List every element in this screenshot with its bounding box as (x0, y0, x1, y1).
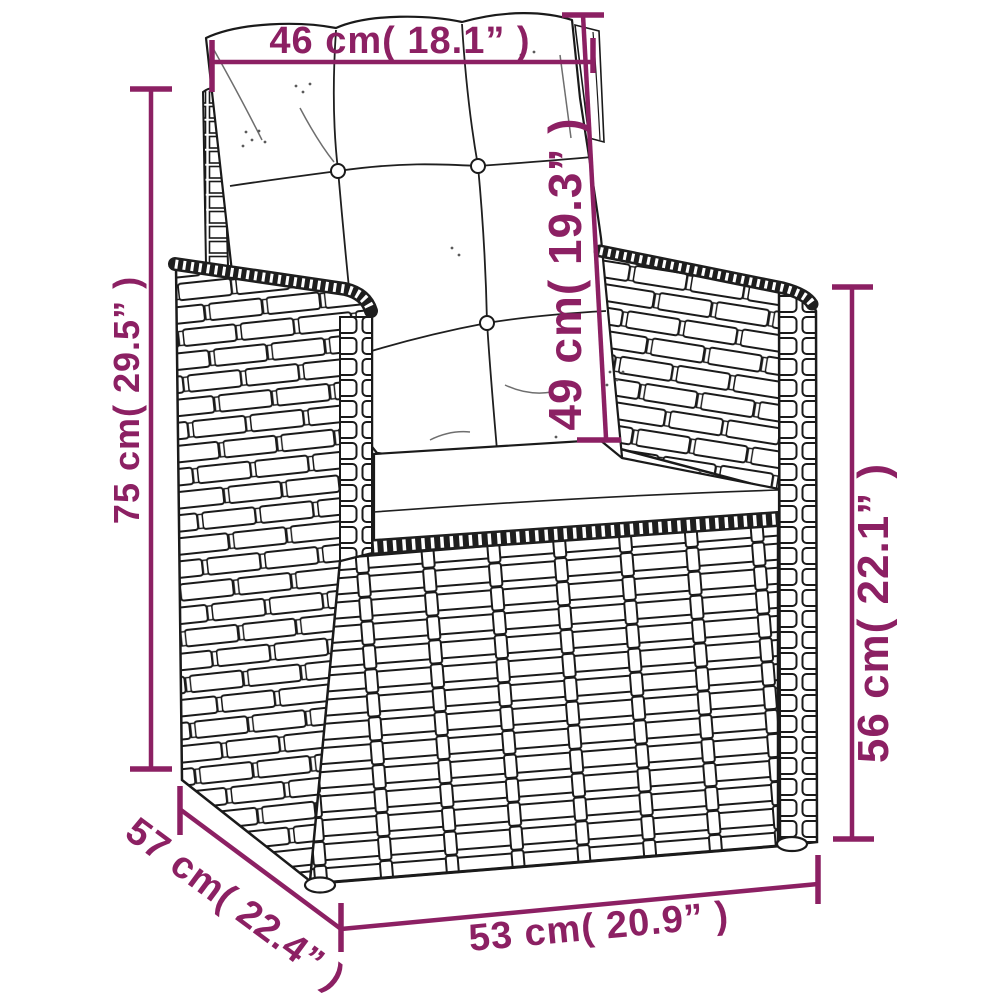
chair-foot-front-left (305, 878, 335, 893)
right-armrest-outer-side (779, 291, 817, 846)
dimension-total-height: 75 cm( 29.5” ) (106, 89, 172, 770)
dimension-label-arm-height: 56 cm( 22.1” ) (849, 463, 898, 763)
armchair-dimension-drawing: 46 cm( 18.1” ) 49 cm( 19.3” ) 75 cm( 29.… (0, 0, 1000, 1000)
dimension-label-back-height: 49 cm( 19.3” ) (539, 117, 591, 430)
base-front-panel (308, 522, 778, 884)
dimension-armrest-height: 56 cm( 22.1” ) (832, 287, 898, 840)
chair-foot-front-right (777, 837, 807, 851)
dimension-diagram: 46 cm( 18.1” ) 49 cm( 19.3” ) 75 cm( 29.… (0, 0, 1000, 1000)
tuft-button (331, 164, 345, 178)
chair-base (308, 519, 778, 884)
dimension-label-total-height: 75 cm( 29.5” ) (106, 276, 147, 524)
armchair-drawing (175, 13, 817, 892)
tuft-button (471, 159, 485, 173)
dimension-label-top-width: 46 cm( 18.1” ) (269, 20, 530, 62)
left-armrest-inner-side (340, 317, 372, 561)
tuft-button (480, 316, 494, 330)
